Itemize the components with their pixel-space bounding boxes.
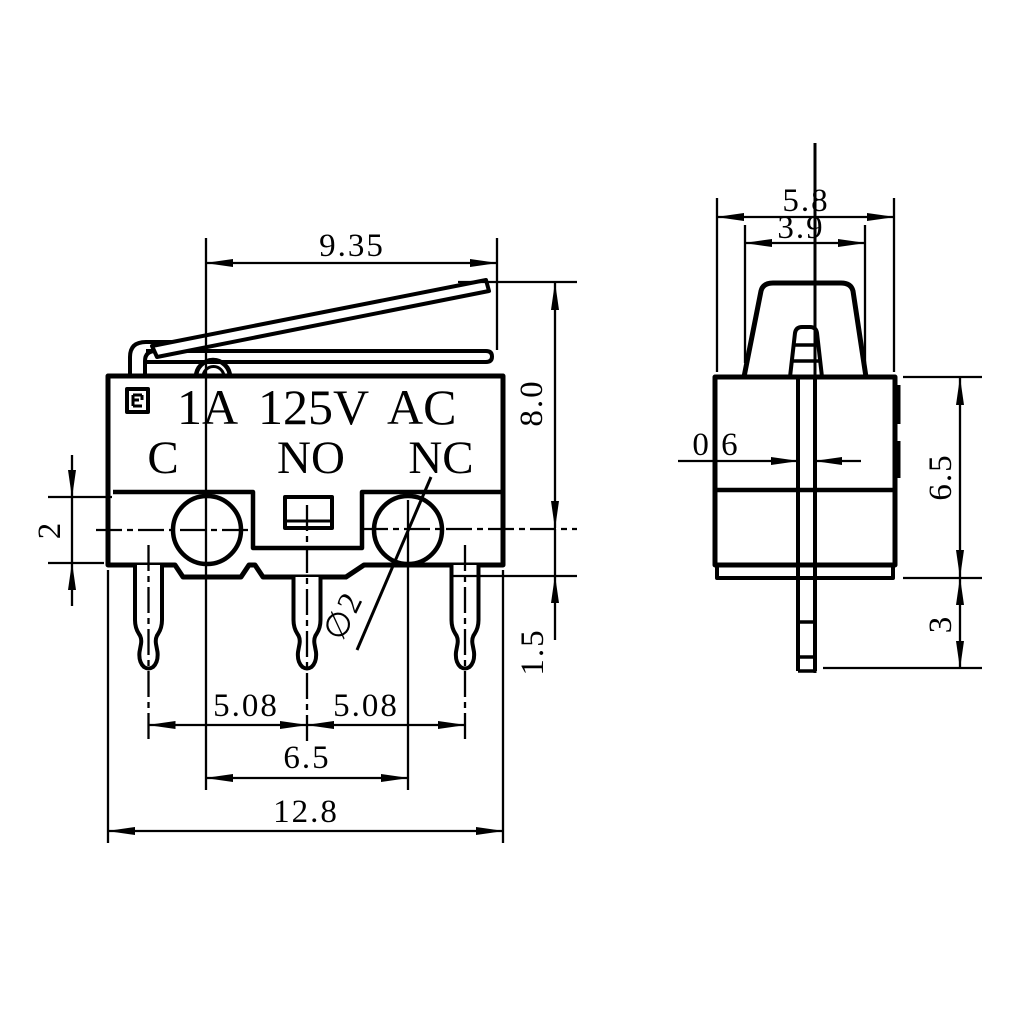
dim-terminal-thickness: 0.6 (678, 427, 861, 486)
actuator-boot (744, 283, 866, 377)
terminal-label-nc: NC (408, 432, 473, 484)
drawing-canvas: 1A 125V AC C NO NC 9.35 8.0 1.5 2 (0, 0, 1024, 1024)
terminal-label-c: C (147, 432, 178, 484)
dim-pin-pitch-left-label: 5.08 (213, 688, 279, 724)
dim-body-height: 6.5 (903, 377, 982, 578)
dim-body-height-label: 6.5 (923, 453, 959, 500)
dim-lever-reach-label: 9.35 (319, 228, 385, 264)
manufacturer-logo (127, 389, 148, 412)
dim-terminal-length: 3 (823, 578, 982, 668)
dim-body-width-label: 12.8 (273, 794, 339, 830)
terminal-label-no: NO (277, 432, 345, 484)
dim-center-bottom-label: 1.5 (515, 628, 551, 675)
dim-pin-pitch-right: 5.08 (307, 688, 465, 725)
dim-terminal-length-label: 3 (923, 615, 959, 634)
rating-circuit: AC (387, 379, 456, 435)
plunger (790, 327, 822, 377)
front-view: 1A 125V AC C NO NC 9.35 8.0 1.5 2 (32, 228, 577, 843)
microswitch-dimension-drawing: 1A 125V AC C NO NC 9.35 8.0 1.5 2 (0, 0, 1024, 1024)
dim-hole-pitch-label: 6.5 (283, 740, 330, 776)
lever-flat-strip (146, 351, 492, 362)
dim-pin-pitch-right-label: 5.08 (333, 688, 399, 724)
dim-terminal-thickness-label: 0.6 (692, 427, 739, 463)
rating-voltage: 125V (258, 379, 369, 435)
dim-pin-pitch-left: 5.08 (149, 688, 308, 725)
side-body-outline (715, 377, 895, 565)
lever-arm (130, 280, 492, 377)
dim-flange-label: 2 (32, 521, 68, 540)
side-terminal-pin (798, 377, 815, 671)
no-contact-window (285, 497, 332, 528)
lever-raised-arm (152, 280, 489, 357)
dim-overall-height-label: 8.0 (514, 379, 550, 426)
side-view: 5.8 3.9 0.6 6.5 3 (678, 143, 982, 673)
rating-current: 1A (177, 379, 238, 435)
dim-actuator-width-label: 3.9 (777, 210, 824, 246)
